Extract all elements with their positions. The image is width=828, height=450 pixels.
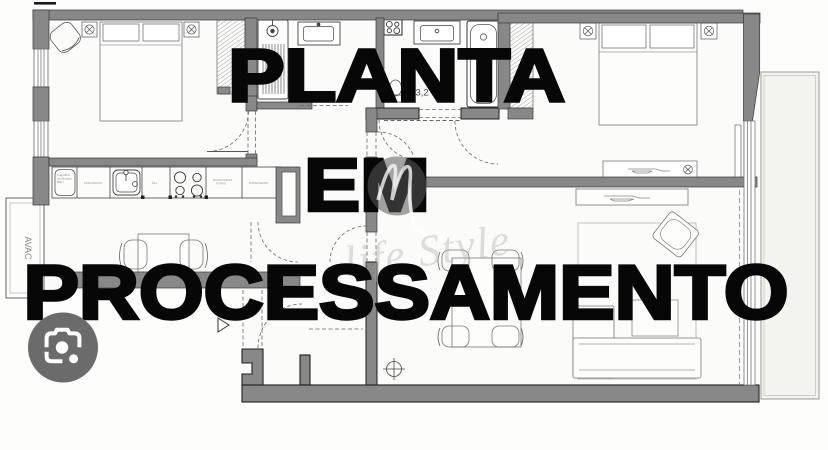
svg-text:PROCESSAMENTO: PROCESSAMENTO <box>24 250 789 335</box>
svg-text:DISPENSEIRO: DISPENSEIRO <box>249 181 269 185</box>
svg-text:FRIGORIFICO: FRIGORIFICO <box>84 181 103 185</box>
svg-text:PLANTA: PLANTA <box>228 34 565 117</box>
svg-text:MLL: MLL <box>152 181 158 185</box>
